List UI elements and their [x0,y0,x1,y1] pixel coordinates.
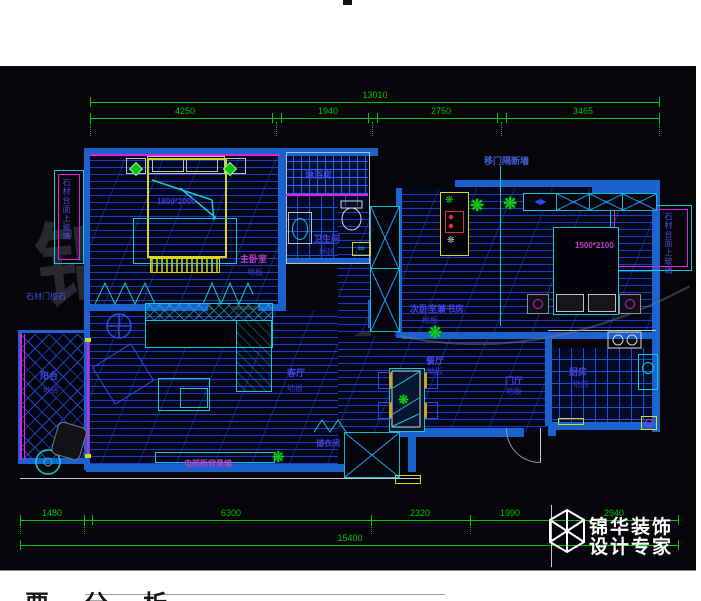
wardrobe-xbox [556,193,591,211]
room-label-master: 主卧室 [240,254,267,264]
dim-tick [659,97,660,107]
tv-wall-note: 电视柜背景墙 [184,458,232,469]
dim-line [90,118,660,119]
plant-icon: ❋ [428,325,442,340]
stove-icon [607,330,643,350]
appliance-icon [445,211,464,233]
wall-segment [455,180,595,187]
floor-label: 地砖 [573,380,589,389]
dim-tick [368,113,369,123]
room-label-study: 次卧室兼书房 [410,304,464,314]
floor-label: 地砖 [319,248,335,257]
dim-tick [92,515,93,525]
closet-xbox [370,268,400,332]
plant-icon: ❋ [503,196,517,211]
plant-icon: ❋ [470,198,484,213]
floor-label: 地板 [427,367,443,376]
dim-line [90,102,660,103]
coffee-table-inner [180,388,208,408]
room-label-cloak: 储衣间 [316,439,340,449]
sofa-chaise [236,320,272,392]
sink-drain-icon [642,362,654,374]
floor-label: 地板 [247,268,263,277]
dim-tick [20,540,21,550]
entry-closet-xbox [344,432,400,478]
brand-cube-icon [545,507,589,555]
floor-label: 地砖 [43,386,59,395]
wardrobe-xbox [589,193,624,211]
dining-chair [378,402,392,419]
folding-door-icon [314,418,348,434]
toilet-icon [338,200,366,232]
folding-door-icon [95,280,157,306]
room-label-kitchen: 厨房 [569,367,587,377]
bed-end-runner [150,258,220,273]
entry-door-arc [506,428,541,463]
floor-label: 地板 [422,316,438,325]
balcony-window-line [87,342,89,458]
wall-segment [278,148,286,311]
dim-tick [678,515,679,525]
bay-window-right-glass [614,209,688,267]
dim-extension [372,122,373,136]
room-label-balcony: 阳台 [40,371,58,381]
nightstand [527,294,549,314]
footer-caption: 要分析 [25,590,202,601]
flower-icon: ❊ [447,235,455,246]
balcony-window-line [24,334,25,460]
appliance-cabinet: ❋ ❊ [440,192,469,256]
wall-segment [18,330,88,333]
footer-caption-clip: 要分析 [25,584,345,601]
small-cabinet [641,416,657,430]
plant-icon: ❋ [445,195,453,206]
stone-glass-note-right: 石材台面上玻璃 [664,212,673,288]
dim-label: 2750 [421,106,461,116]
screenshot-root: 锦 华 装 饰 [0,0,701,601]
dim-label: 2320 [400,508,440,518]
dim-label: 4250 [165,106,205,116]
threshold-strip [558,418,584,425]
dim-label: 1940 [308,106,348,116]
dim-extension [501,122,502,136]
sink-basin-icon [292,218,308,240]
closet-xbox [370,206,400,270]
entry-door-leaf [540,428,541,462]
partition-leader-line [500,166,501,326]
dim-label: 6300 [211,508,251,518]
window-end-block [85,454,91,458]
page-edge-mark [343,0,352,5]
dim-extension [659,122,660,136]
wall-segment [548,422,556,436]
dim-tick [497,113,498,123]
balcony-window-line [20,334,22,460]
nightstand [619,294,641,314]
dim-extension [276,122,277,136]
pillow [556,294,584,312]
dim-tick [506,113,507,123]
dim-tick [272,113,273,123]
shower-glass-line [286,194,368,196]
dim-label-bottom-total: 15400 [328,533,372,543]
master-bed-size-label: 1800*2000 [157,197,196,206]
brand-name: 锦华装饰 [589,518,673,538]
partition-note: 移门隔断墙 [484,156,529,166]
watermark-curve [400,266,690,366]
dim-tick [377,113,378,123]
folding-door-icon [203,280,255,306]
floorplan-canvas: 锦 华 装 饰 [0,66,696,571]
dim-label: 1990 [490,508,530,518]
door-stone-icon [395,475,421,484]
dim-tick [281,113,282,123]
room-label-bath: 卫生间 [313,234,340,244]
dim-tick [90,97,91,107]
dim-label-top-total: 13010 [90,90,660,100]
pillow [588,294,616,312]
plant-icon: ❋ [272,450,285,465]
lamp-icon [625,299,635,309]
dim-extension [84,524,85,534]
knob-icon [645,419,653,427]
room-label-dining: 餐厅 [426,356,444,366]
floor-lamp-icon [105,312,133,340]
wall-segment [408,428,416,472]
room-label-hall: 门厅 [505,376,523,386]
dim-extension [20,524,21,534]
threshold-note: 石材门槛石 [26,292,66,301]
plan-bottom-line [20,478,420,479]
stone-glass-note-left: 石材台面上玻璃 [62,178,71,258]
dim-label: 3465 [563,106,603,116]
dim-extension [470,524,471,534]
room-label-living: 客厅 [287,368,305,378]
lamp-icon [533,299,543,309]
dining-chair [424,402,438,419]
shoe-cabinet-icon: ∞ [352,242,371,256]
dim-extension [371,524,372,534]
second-bed-size-label: 1500*2100 [575,241,614,250]
plant-icon: ❋ [398,392,409,407]
room-label-shower: 淋浴房 [305,170,332,180]
wardrobe-xbox [622,193,657,211]
dim-label: 1480 [32,508,72,518]
floor-label: 地板 [506,387,522,396]
floor-label: 地板 [287,384,303,393]
dim-extension [90,122,91,136]
dining-chair [378,372,392,389]
brand-tagline: 设计专家 [589,538,673,558]
wardrobe-door-icon: ◀▶ [523,193,558,211]
window-end-block [85,338,91,342]
dim-tick [678,540,679,550]
